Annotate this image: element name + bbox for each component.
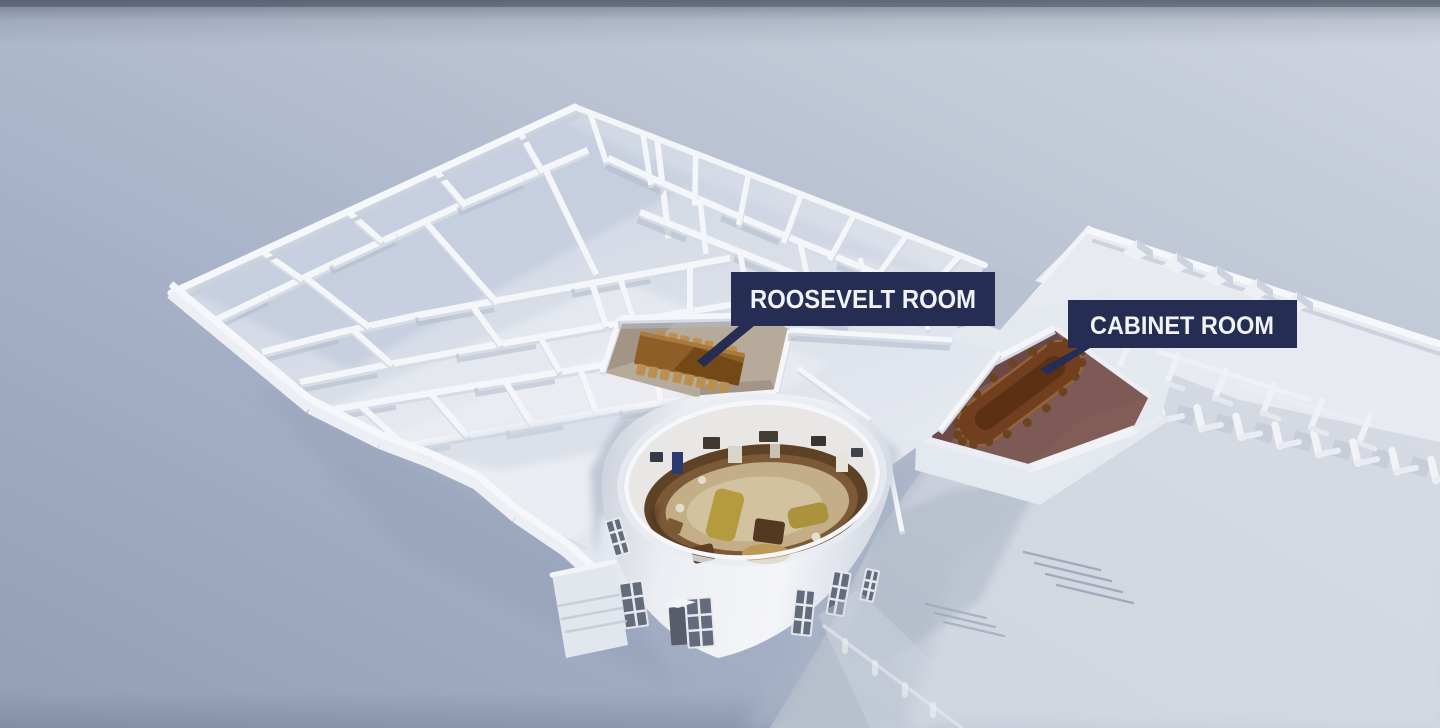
- svg-text:ROOSEVELT ROOM: ROOSEVELT ROOM: [750, 284, 976, 314]
- svg-text:CABINET ROOM: CABINET ROOM: [1090, 312, 1274, 340]
